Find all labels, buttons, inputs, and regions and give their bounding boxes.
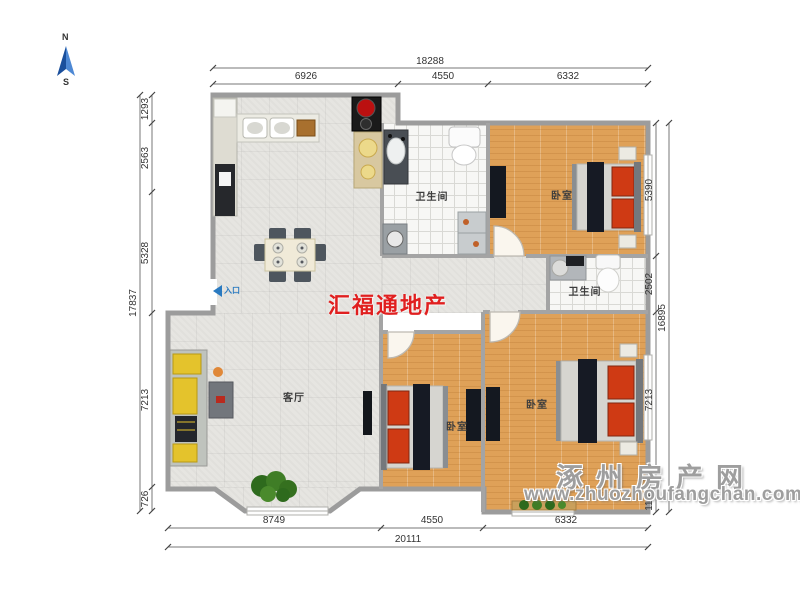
coffee-table xyxy=(209,382,233,418)
sofa xyxy=(170,350,207,466)
kitchen-counters xyxy=(213,97,382,216)
dim-bottom-seg2: 4550 xyxy=(402,515,462,527)
nightstand-icon xyxy=(620,442,637,455)
dim-bottom-seg1: 8749 xyxy=(244,515,304,527)
dim-right-seg1: 5390 xyxy=(644,160,656,220)
entrance-label: 入口 xyxy=(224,285,240,296)
dim-top-seg2: 4550 xyxy=(413,71,473,83)
room-label-bedroom-mid: 卧室 xyxy=(427,418,487,433)
dim-left-seg4: 7213 xyxy=(140,370,152,430)
dim-left-overall: 17837 xyxy=(128,273,140,333)
room-label-bedroom-right: 卧室 xyxy=(507,396,567,411)
dining-table xyxy=(254,228,326,282)
dim-bottom-overall: 20111 xyxy=(378,534,438,546)
shower-cabinet-icon xyxy=(458,212,486,254)
compass-south-label: S xyxy=(63,77,69,87)
lamp-icon xyxy=(213,367,223,377)
watermark-brand: 汇福通地产 xyxy=(328,288,448,320)
tv-icon xyxy=(363,391,372,435)
room-label-bedroom-top: 卧室 xyxy=(532,187,592,202)
wardrobe-icon xyxy=(490,166,506,218)
dim-top-seg1: 6926 xyxy=(276,71,336,83)
stove-icon xyxy=(352,97,381,131)
compass-arrow-icon xyxy=(57,46,75,76)
washing-machine-icon xyxy=(383,224,407,254)
wardrobe-icon xyxy=(466,389,481,441)
bed-icon xyxy=(556,359,643,443)
oven-icon xyxy=(215,164,235,216)
dim-top-overall: 18288 xyxy=(400,56,460,68)
floor-plan-canvas: N S 18288 6926 4550 6332 8749 4550 6332 … xyxy=(0,0,800,600)
dim-top-seg3: 6332 xyxy=(538,71,598,83)
room-label-bathroom-mid: 卫生间 xyxy=(555,283,615,298)
vanity-sink-icon xyxy=(384,130,408,184)
room-label-bathroom-top: 卫生间 xyxy=(402,188,462,203)
dim-bottom-seg3: 6332 xyxy=(536,515,596,527)
dim-right-seg2: 2502 xyxy=(644,254,656,314)
dim-left-seg5: 726 xyxy=(140,469,152,529)
nightstand-icon xyxy=(619,147,636,160)
side-counter xyxy=(354,132,382,188)
compass-north-label: N xyxy=(62,32,69,42)
nightstand-icon xyxy=(620,344,637,357)
room-label-living: 客厅 xyxy=(264,389,324,404)
dim-right-overall: 16895 xyxy=(657,288,669,348)
toilet-icon xyxy=(449,127,480,165)
dim-right-seg3: 7213 xyxy=(644,370,656,430)
cutting-board-icon xyxy=(297,120,315,136)
nightstand-icon xyxy=(619,235,636,248)
wardrobe-icon xyxy=(486,387,500,441)
watermark-site-url: www.zhuozhoufangchan.com xyxy=(524,484,800,506)
dim-left-seg2: 2563 xyxy=(140,128,152,188)
dim-left-seg3: 5328 xyxy=(140,223,152,283)
plant-icon xyxy=(251,471,297,502)
